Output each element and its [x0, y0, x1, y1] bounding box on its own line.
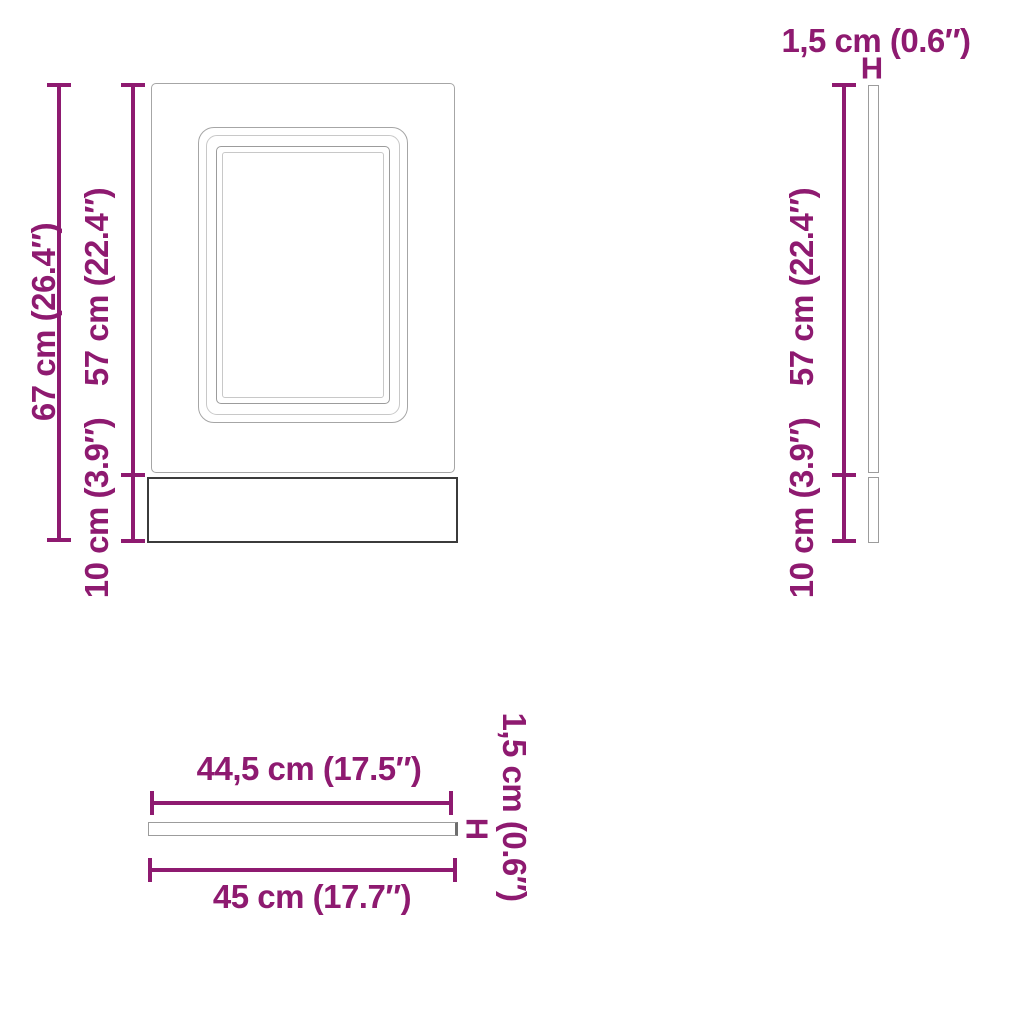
top-total-width-dim-line	[150, 868, 457, 872]
top-panel-edge	[148, 822, 458, 836]
side-panel-upper-edge	[868, 85, 879, 473]
top-inner-width-dim-line	[152, 801, 453, 805]
front-door-panel-inner-line	[222, 152, 384, 398]
side-height-tick-top	[832, 83, 856, 87]
front-total-height-tick-bottom	[47, 538, 71, 542]
top-total-width-tick-right	[453, 858, 457, 882]
side-height-tick-middle	[832, 473, 856, 477]
top-total-width-tick-left	[148, 858, 152, 882]
front-split-tick-top	[121, 83, 145, 87]
top-inner-width-tick-left	[150, 791, 154, 815]
top-thickness-label: 1,5 cm (0.6″)	[495, 712, 533, 901]
side-thickness-marker-icon: H	[861, 53, 883, 84]
side-plinth-height-label: 10 cm (3.9″)	[783, 418, 821, 598]
front-split-tick-middle	[121, 473, 145, 477]
front-plinth-outline	[147, 477, 458, 543]
side-height-tick-bottom	[832, 539, 856, 543]
top-thickness-marker-icon: H	[462, 818, 493, 840]
top-inner-width-label: 44,5 cm (17.5″)	[197, 750, 422, 788]
top-inner-width-tick-right	[449, 791, 453, 815]
top-total-width-label: 45 cm (17.7″)	[213, 878, 411, 916]
front-total-height-tick-top	[47, 83, 71, 87]
front-plinth-height-label: 10 cm (3.9″)	[78, 418, 116, 598]
front-door-height-label: 57 cm (22.4″)	[78, 188, 116, 386]
front-split-tick-bottom	[121, 539, 145, 543]
side-door-height-label: 57 cm (22.4″)	[783, 188, 821, 386]
side-plinth-lower-edge	[868, 477, 879, 543]
dimension-diagram: 67 cm (26.4″) 57 cm (22.4″) 10 cm (3.9″)…	[0, 0, 1024, 1024]
front-total-height-label: 67 cm (26.4″)	[25, 223, 63, 421]
